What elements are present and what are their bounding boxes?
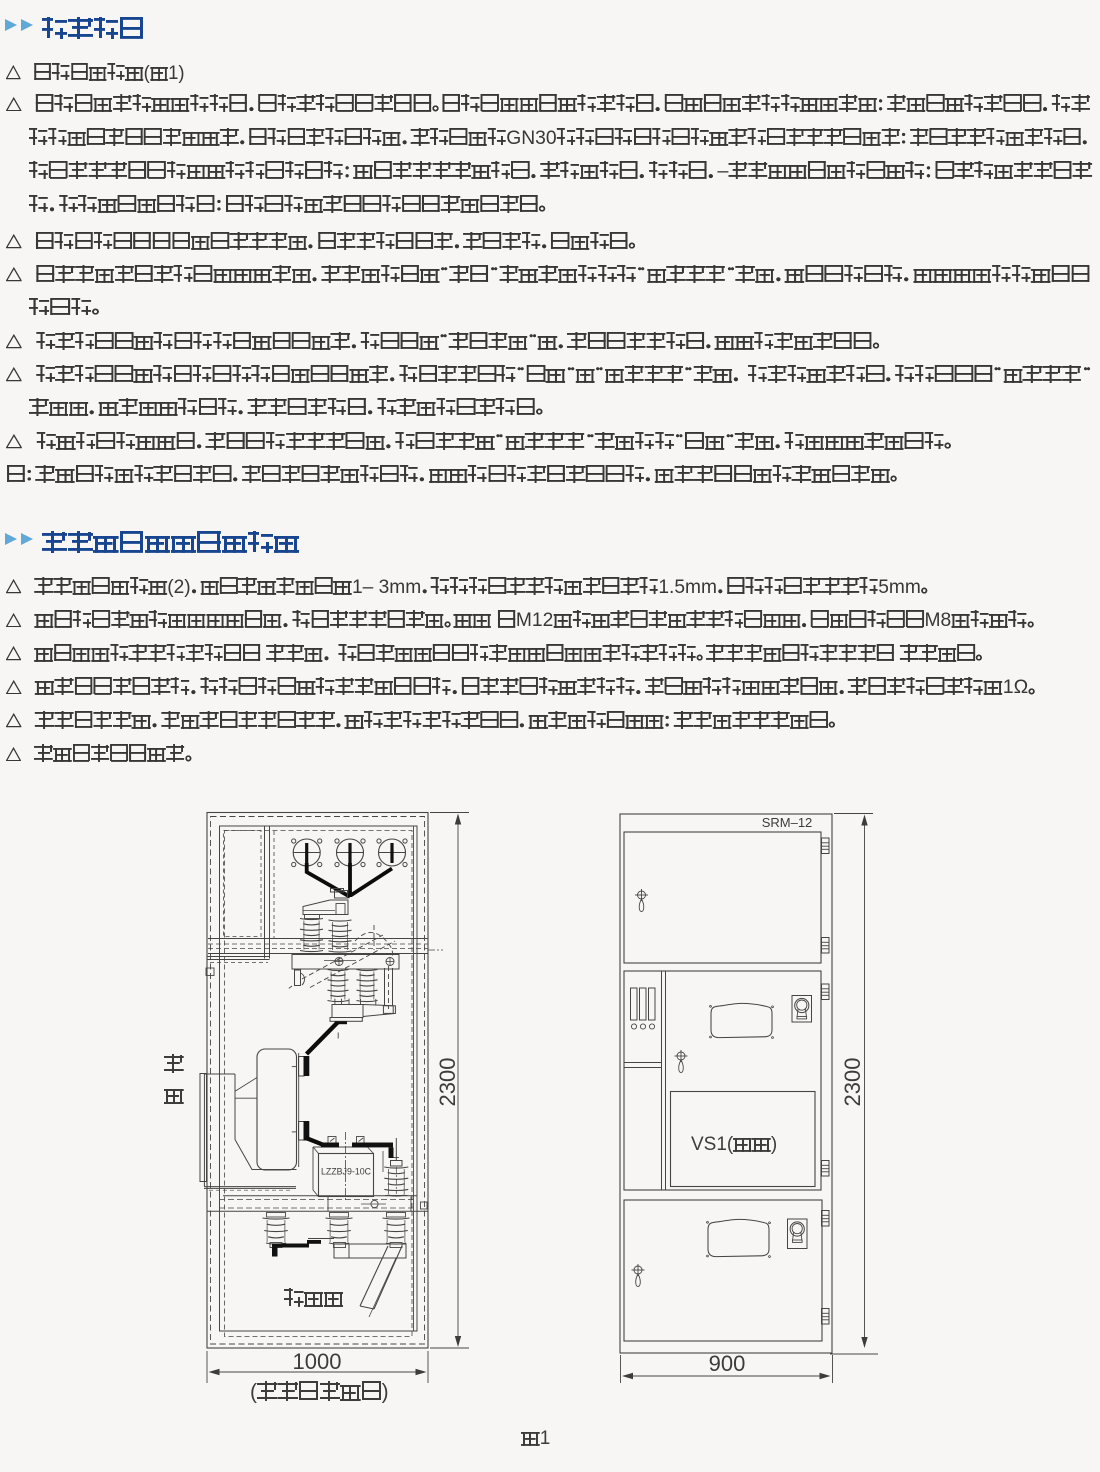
svg-text:2300: 2300 <box>435 1058 460 1107</box>
svg-text:900: 900 <box>709 1351 746 1376</box>
svg-text:SRM–12: SRM–12 <box>762 815 813 830</box>
svg-text:2300: 2300 <box>840 1058 865 1107</box>
svg-text:LZZBJ9-10C: LZZBJ9-10C <box>321 1167 371 1178</box>
svg-text:1000: 1000 <box>293 1349 342 1374</box>
